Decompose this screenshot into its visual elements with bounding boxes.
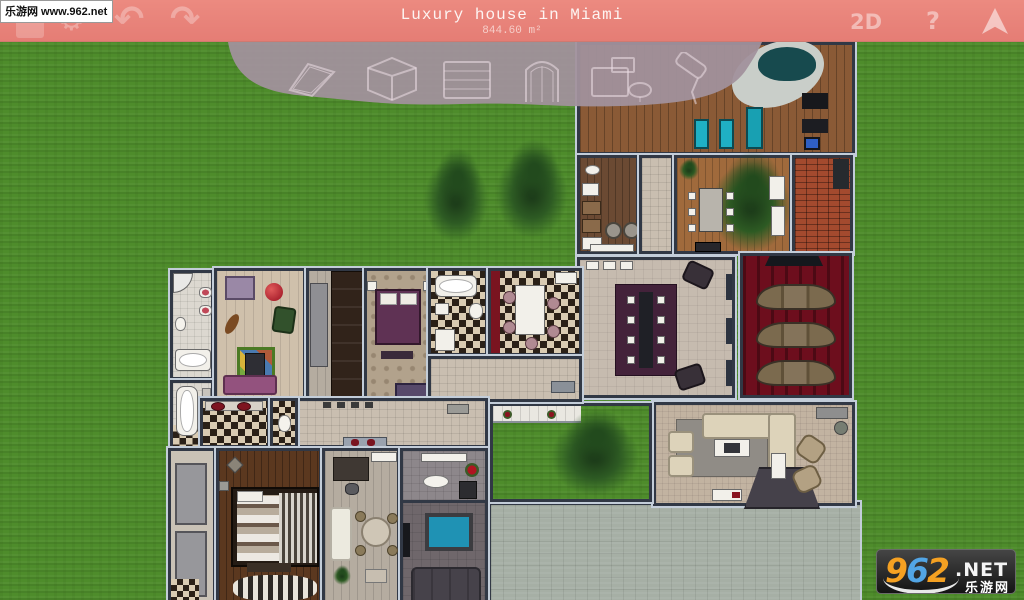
magazine-rack[interactable] (771, 453, 786, 479)
courtyard-tree[interactable] (551, 418, 639, 496)
planter[interactable] (834, 421, 848, 435)
theater-sofa[interactable] (756, 284, 836, 310)
nightstand[interactable] (219, 481, 229, 491)
logo-swoosh (883, 578, 959, 594)
chair[interactable] (657, 316, 665, 324)
cabinet[interactable] (365, 569, 387, 583)
bath-nook[interactable] (403, 451, 485, 503)
chair[interactable] (726, 208, 734, 216)
chair[interactable] (657, 356, 665, 364)
wc[interactable] (270, 398, 298, 448)
wardrobe-gray[interactable] (310, 283, 328, 367)
hallway-north[interactable] (639, 155, 674, 254)
toilet[interactable] (423, 475, 449, 488)
chair[interactable] (688, 224, 696, 232)
outdoor-chair[interactable] (802, 119, 828, 133)
chair[interactable] (688, 208, 696, 216)
toilet[interactable] (469, 303, 483, 319)
stool[interactable] (525, 337, 538, 350)
sink-red[interactable] (237, 402, 251, 411)
dining-room[interactable] (674, 155, 792, 254)
toilet[interactable] (278, 415, 291, 432)
floor-plan-canvas[interactable]: Luxury house in Miami 844.60 m² ⚙ ↶ ↷ 2D… (0, 0, 1024, 600)
corner-shower[interactable] (173, 273, 193, 293)
plant[interactable] (679, 160, 699, 180)
site-logo: 962 .NET 乐游网 (876, 549, 1016, 594)
family-room[interactable] (653, 402, 855, 506)
desk-chair[interactable] (345, 483, 359, 495)
theater-sofa[interactable] (756, 360, 836, 386)
round-table[interactable] (361, 517, 391, 547)
laptop[interactable] (724, 443, 740, 453)
wall-decor (227, 457, 244, 474)
stool[interactable] (547, 297, 560, 310)
bathtub[interactable] (175, 349, 211, 371)
logo-site-name: 乐游网 (965, 577, 1010, 594)
stool[interactable] (547, 325, 560, 338)
vanity[interactable] (435, 329, 455, 351)
chair[interactable] (355, 511, 366, 522)
chair[interactable] (387, 545, 398, 556)
pantry[interactable] (577, 155, 639, 254)
home-theater[interactable] (740, 253, 852, 398)
cabinet[interactable] (582, 219, 601, 233)
bathroom-1[interactable] (170, 270, 214, 380)
red-accent (732, 492, 740, 498)
bed[interactable] (375, 289, 421, 345)
vanity-counter[interactable] (421, 453, 467, 462)
kitchen-appliance[interactable] (620, 261, 633, 270)
fridge[interactable] (769, 176, 785, 200)
red-flower[interactable] (465, 463, 479, 477)
red-wall-strip (491, 271, 500, 353)
chair[interactable] (688, 192, 696, 200)
grill[interactable] (802, 93, 828, 109)
kitchen-unit[interactable] (771, 206, 785, 236)
tub-basin (180, 390, 194, 432)
chair[interactable] (387, 513, 398, 524)
theater-sofa[interactable] (756, 322, 836, 348)
tub-basin (179, 353, 207, 367)
guitar[interactable] (222, 312, 242, 336)
hallway-south[interactable] (296, 398, 488, 448)
sink[interactable] (199, 287, 212, 298)
sink[interactable] (585, 165, 600, 175)
view-mode-button[interactable]: 2D (850, 10, 882, 34)
chair[interactable] (657, 296, 665, 304)
dining-table[interactable] (699, 188, 723, 232)
sink[interactable] (435, 303, 449, 315)
paint-tool-icon[interactable] (668, 52, 720, 106)
kitchen-appliance[interactable] (603, 261, 616, 270)
shelf[interactable] (555, 272, 577, 284)
stool[interactable] (623, 222, 640, 239)
armchair[interactable] (668, 455, 694, 477)
rattan-chair[interactable] (793, 432, 828, 467)
coat-hooks[interactable] (323, 402, 375, 408)
bathtub[interactable] (176, 386, 198, 436)
sideboard[interactable] (695, 242, 721, 252)
hallway-center[interactable] (428, 356, 582, 402)
chair[interactable] (627, 316, 635, 324)
wall-tool-icon[interactable] (438, 56, 496, 102)
kitchen-appliance[interactable] (586, 261, 599, 270)
plant[interactable] (333, 567, 351, 585)
outdoor-seat-blue[interactable] (804, 137, 820, 150)
courtyard[interactable] (490, 403, 652, 502)
master-bedroom[interactable] (216, 448, 322, 600)
pillar (726, 318, 732, 344)
breakfast-room[interactable] (488, 268, 582, 356)
zebra-rug[interactable] (233, 575, 317, 600)
redo-icon[interactable]: ↷ (170, 2, 200, 38)
flower (503, 410, 512, 419)
shoes (367, 439, 375, 446)
kids-sofa[interactable] (223, 375, 277, 395)
red-ball[interactable] (265, 283, 283, 301)
appliance-row[interactable] (590, 244, 634, 252)
stool[interactable] (503, 291, 516, 304)
bed[interactable] (231, 487, 319, 567)
bookshelf[interactable] (371, 452, 397, 462)
chair[interactable] (627, 296, 635, 304)
wardrobe[interactable] (175, 463, 207, 525)
armchair[interactable] (668, 431, 694, 453)
checker-strip (171, 579, 199, 600)
furniture-tool-icon[interactable] (588, 54, 654, 104)
door-tool-icon[interactable] (516, 52, 568, 104)
garden-bush (424, 158, 488, 242)
pillar (726, 360, 732, 386)
projection-screen[interactable] (765, 256, 823, 266)
console-shelf[interactable] (816, 407, 848, 419)
watermark-label: 乐游网 www.962.net (0, 0, 113, 23)
hamper[interactable] (459, 481, 477, 499)
sofa-white[interactable] (330, 507, 352, 561)
room-tool-icon[interactable] (362, 54, 422, 102)
sink[interactable] (199, 305, 212, 316)
console[interactable] (447, 404, 469, 414)
garden-bush (496, 150, 568, 238)
bed-bench[interactable] (247, 563, 291, 572)
pillow (400, 293, 417, 305)
armchair[interactable] (673, 362, 706, 392)
chair[interactable] (627, 356, 635, 364)
chair[interactable] (726, 224, 734, 232)
dark-panel (833, 159, 849, 189)
chair[interactable] (355, 545, 366, 556)
help-button[interactable]: ? (926, 7, 940, 35)
closet-room[interactable] (168, 448, 216, 600)
armchair[interactable] (681, 259, 716, 291)
sectional-sofa[interactable] (411, 567, 481, 600)
chair[interactable] (657, 336, 665, 344)
shoe-bench[interactable] (343, 437, 387, 448)
washer[interactable] (582, 183, 599, 196)
brick-terrace[interactable] (792, 155, 853, 254)
study[interactable] (322, 448, 400, 600)
shoes (351, 439, 359, 446)
wardrobe-dark[interactable] (331, 271, 364, 399)
cabinet[interactable] (582, 201, 601, 215)
bathroom-4[interactable] (200, 398, 270, 448)
media-room[interactable] (400, 448, 488, 600)
doormat (551, 381, 575, 393)
sink-red[interactable] (211, 402, 225, 411)
throw-runner (279, 493, 317, 563)
long-table[interactable] (639, 292, 653, 368)
pillar (726, 274, 732, 300)
bathtub[interactable] (435, 275, 477, 297)
crib[interactable] (225, 276, 255, 300)
chair[interactable] (726, 192, 734, 200)
flower (547, 410, 556, 419)
chair[interactable] (627, 336, 635, 344)
floor-tool-icon[interactable] (282, 56, 340, 102)
stool[interactable] (503, 321, 516, 334)
paved-patio[interactable] (488, 502, 860, 600)
top-bar: Luxury house in Miami 844.60 m² ⚙ ↶ ↷ 2D… (0, 0, 1024, 42)
great-room[interactable] (577, 257, 735, 398)
tub-basin (439, 279, 473, 293)
wall-tv[interactable] (403, 523, 410, 557)
breakfast-table[interactable] (515, 285, 545, 335)
toilet[interactable] (175, 317, 186, 331)
undo-icon[interactable]: ↶ (114, 2, 144, 38)
pillow (380, 293, 397, 305)
pool-table[interactable] (425, 513, 473, 551)
pillow (237, 491, 263, 502)
bed-bench[interactable] (381, 351, 413, 359)
kids-chair[interactable] (271, 306, 296, 335)
bathroom-3[interactable] (428, 268, 488, 356)
stool[interactable] (605, 222, 622, 239)
desk[interactable] (333, 457, 369, 481)
